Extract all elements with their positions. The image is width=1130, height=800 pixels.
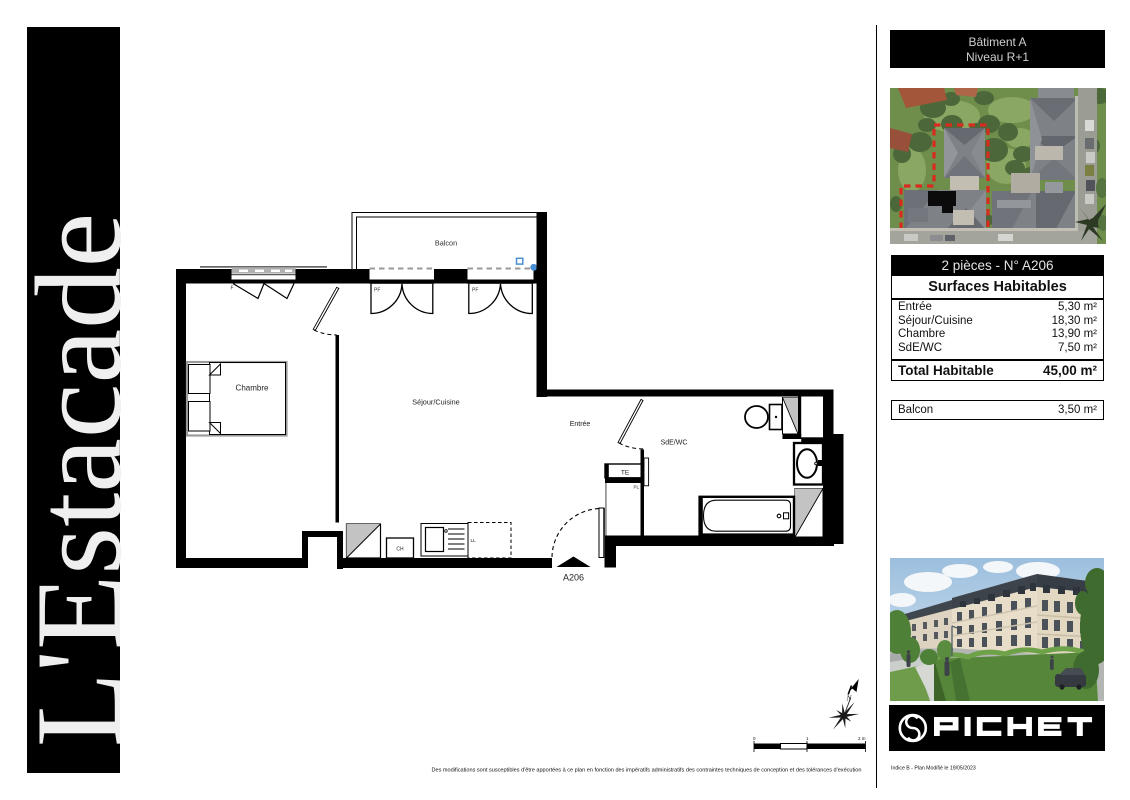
svg-text:PL: PL	[634, 485, 640, 490]
svg-text:Balcon: Balcon	[435, 239, 457, 248]
svg-text:CH: CH	[396, 547, 404, 553]
svg-text:Des modifications sont suscept: Des modifications sont susceptibles d'êt…	[432, 768, 862, 774]
svg-text:1: 1	[806, 736, 809, 741]
svg-text:SdE/WC: SdE/WC	[661, 440, 688, 447]
svg-text:TE: TE	[621, 470, 630, 477]
svg-text:PF: PF	[374, 288, 380, 294]
svg-text:PF: PF	[472, 288, 478, 294]
svg-text:F: F	[231, 286, 234, 292]
svg-text:Indice B - Plan Modifié le 19/: Indice B - Plan Modifié le 19/05/2023	[891, 766, 976, 772]
svg-text:LL: LL	[471, 538, 477, 544]
svg-text:Chambre: Chambre	[236, 384, 269, 393]
svg-text:N: N	[846, 694, 853, 703]
svg-text:A206: A206	[563, 573, 584, 583]
svg-text:0: 0	[753, 736, 756, 741]
svg-text:Séjour/Cuisine: Séjour/Cuisine	[412, 398, 459, 407]
svg-text:Entrée: Entrée	[570, 421, 591, 428]
svg-text:2 m: 2 m	[858, 736, 866, 741]
